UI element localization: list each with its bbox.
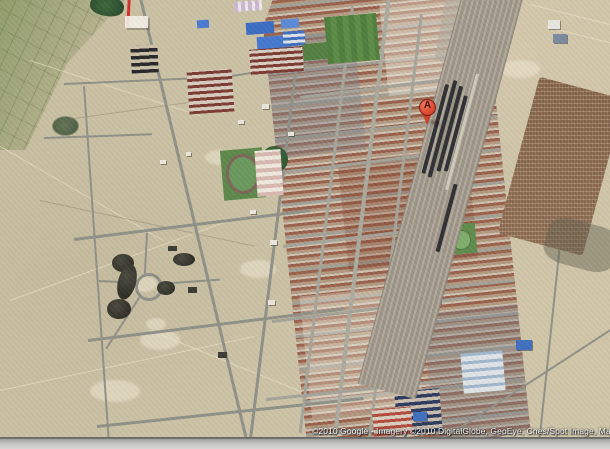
browser-map-window: A ©2010 Google - Imagery ©2010 DigitalGl… [0, 0, 610, 449]
window-bottom-bar [0, 437, 610, 449]
map-pin-marker-a[interactable]: A [419, 99, 437, 127]
terrain-texture [0, 0, 610, 437]
satellite-map-canvas[interactable]: A ©2010 Google - Imagery ©2010 DigitalGl… [0, 0, 610, 437]
pin-label: A [419, 100, 436, 111]
map-attribution: ©2010 Google - Imagery ©2010 DigitalGlob… [312, 426, 610, 436]
